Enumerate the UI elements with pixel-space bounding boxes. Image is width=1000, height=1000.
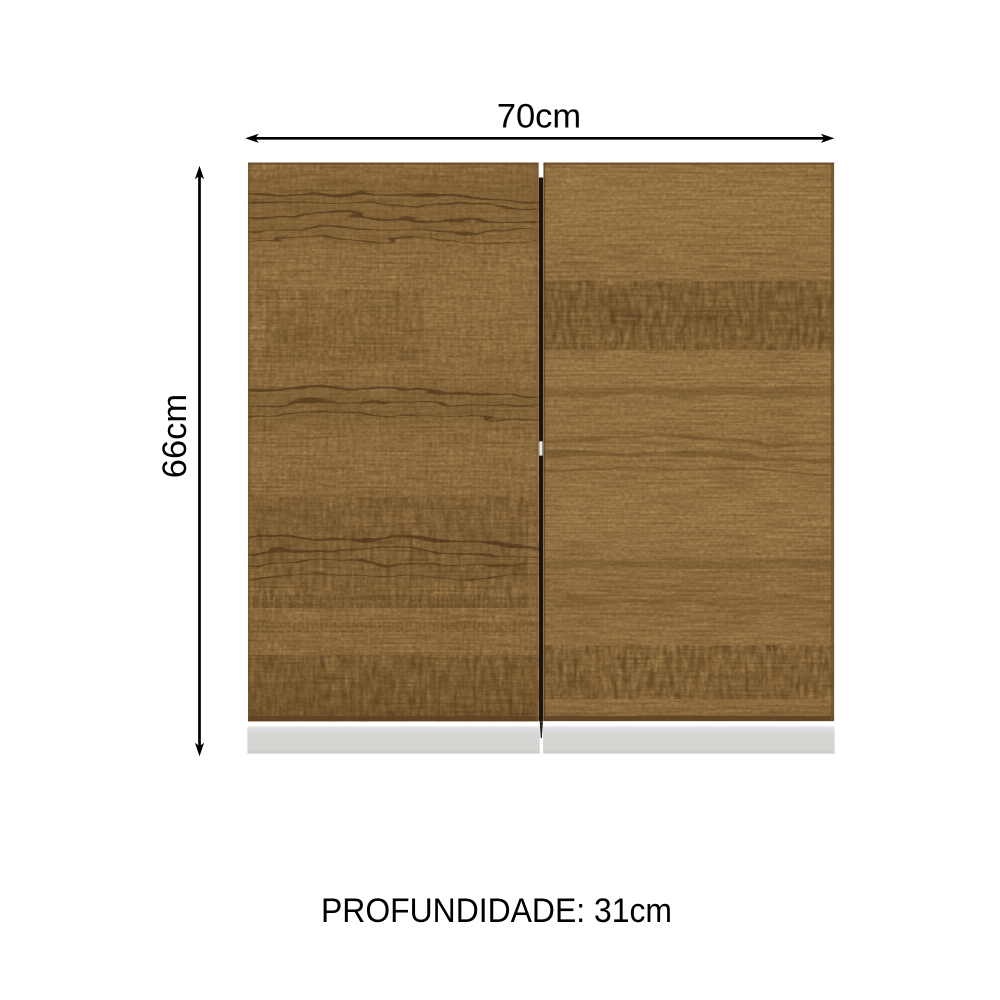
svg-text:70cm: 70cm: [497, 98, 581, 136]
svg-text:PROFUNDIDADE: 31cm: PROFUNDIDADE: 31cm: [321, 892, 672, 930]
svg-text:66cm: 66cm: [156, 394, 194, 478]
